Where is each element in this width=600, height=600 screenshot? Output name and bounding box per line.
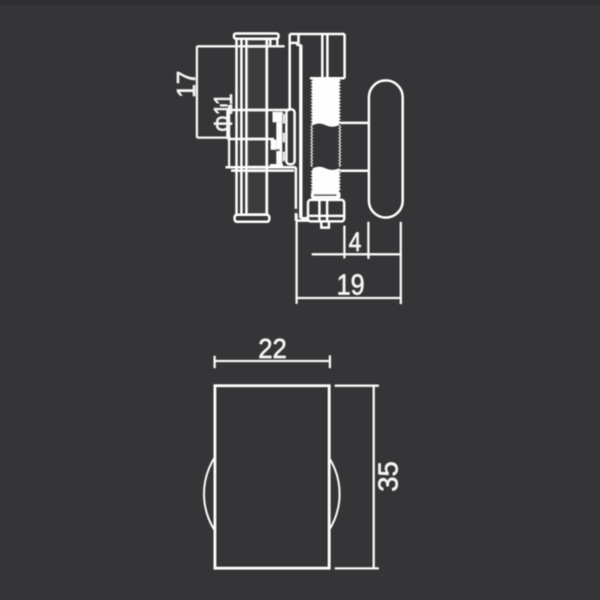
svg-text:19: 19 (337, 270, 365, 302)
svg-text:35: 35 (373, 461, 404, 492)
svg-text:22: 22 (258, 333, 287, 364)
svg-text:17: 17 (171, 71, 201, 98)
svg-text:Φ11: Φ11 (208, 94, 238, 133)
svg-text:4: 4 (349, 227, 362, 257)
